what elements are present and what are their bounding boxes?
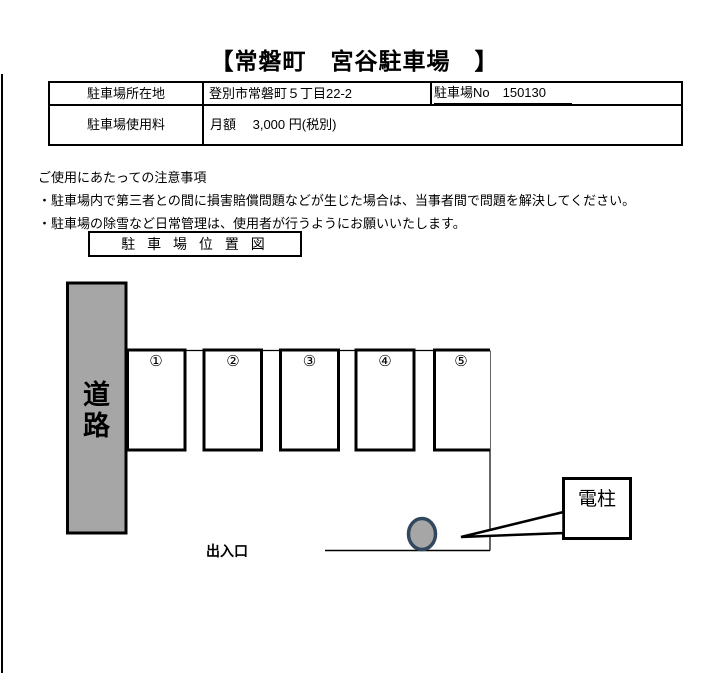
space-number-5: ⑤ [454, 353, 467, 370]
entrance-label: 出入口 [206, 543, 248, 559]
road-label-char-2: 路 [83, 410, 111, 441]
pole-callout-pointer [461, 512, 564, 537]
parking-location-map: 道 路 ① ② ③ ④ ⑤ 出入口 電柱 [0, 0, 709, 673]
parking-document-page: 【常磐町 宮谷駐車場 】 駐車場所在地 登別市常磐町５丁目22-2 駐車場No … [0, 0, 709, 673]
space-number-4: ④ [378, 353, 391, 370]
road-label-char-1: 道 [83, 379, 110, 410]
space-number-1: ① [149, 353, 162, 370]
utility-pole-circle [409, 519, 436, 550]
space-number-2: ② [226, 353, 239, 370]
space-number-3: ③ [303, 353, 316, 370]
pole-callout-label: 電柱 [578, 488, 616, 510]
